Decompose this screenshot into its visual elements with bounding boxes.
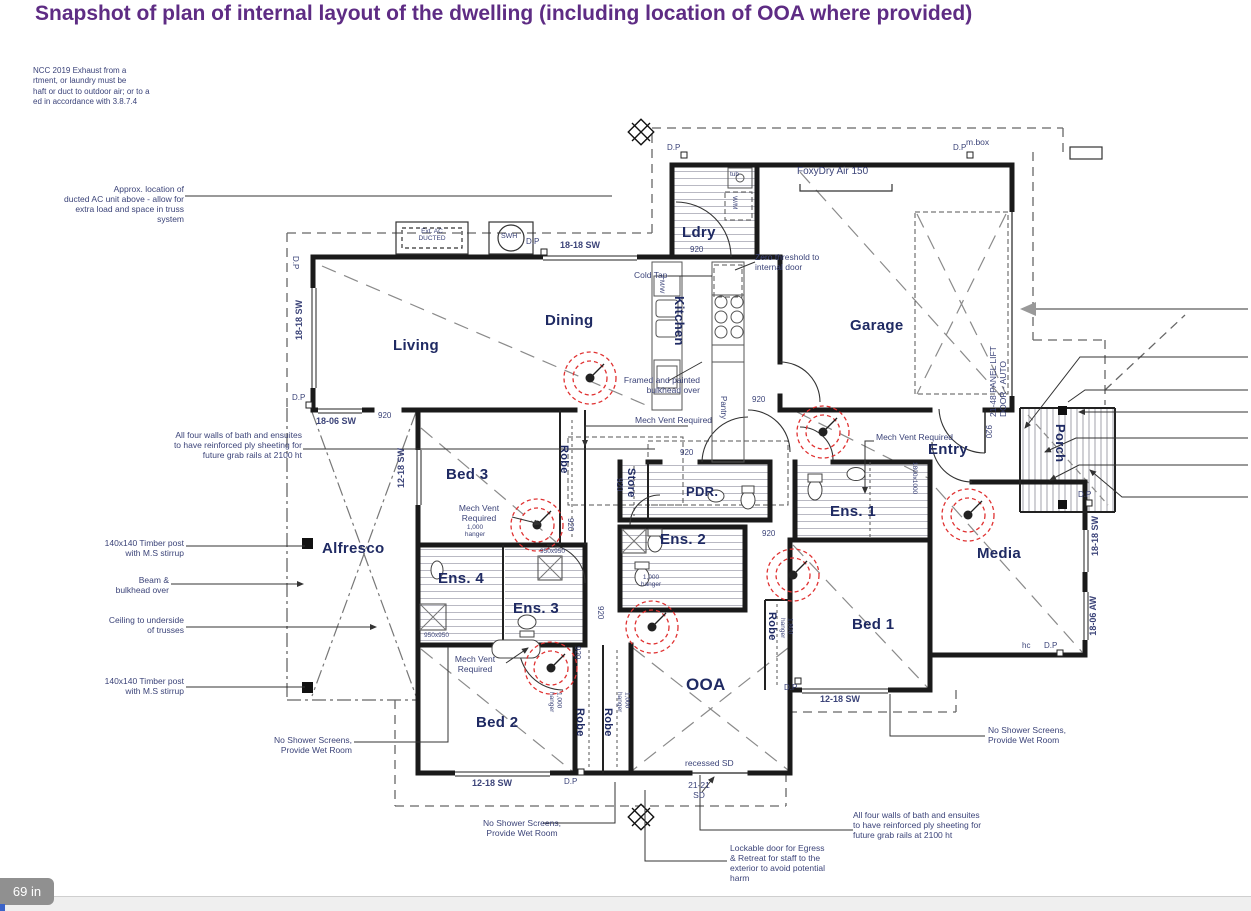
room-label-ooa: OOA <box>686 675 726 695</box>
note-ply-left: All four walls of bath and ensuites to h… <box>88 430 302 460</box>
downpipe-label: D.P <box>667 144 680 153</box>
label-meter-box: m.box <box>966 137 989 147</box>
door-width: 920 <box>762 530 775 539</box>
room-label-alfresco: Alfresco <box>322 540 384 557</box>
room-label-ens1: Ens. 1 <box>830 503 876 520</box>
label-swh: SWH <box>501 233 517 241</box>
window-label: 18-18 SW <box>1090 516 1100 556</box>
hanger-label: 1,000 hanger <box>616 692 630 712</box>
window-label: 12-18 SW <box>820 694 860 704</box>
door-width: 920 <box>572 646 581 659</box>
door-width: 920 <box>565 518 574 531</box>
hanger-label: 1,000 hanger <box>458 524 492 538</box>
note-mech-vent-pdr: Mech Vent Required <box>635 415 712 425</box>
door-width: 920 <box>614 478 623 491</box>
exhaust-fan-icon <box>942 489 994 541</box>
fridge-space-box <box>714 265 742 297</box>
porch-post <box>1058 500 1067 509</box>
note-lockable-door: Lockable door for Egress & Retreat for s… <box>730 843 852 883</box>
note-mech-vent-ens1: Mech Vent Required <box>876 432 953 442</box>
shower-size-label: 950x950 <box>540 548 565 555</box>
note-wet-room-left: No Shower Screens, Provide Wet Room <box>252 735 352 755</box>
room-label-entry: Entry <box>928 441 968 458</box>
room-label-ens3: Ens. 3 <box>513 600 559 617</box>
room-label-bed2: Bed 2 <box>476 714 518 731</box>
note-wet-room-right: No Shower Screens, Provide Wet Room <box>988 725 1090 745</box>
label-ext-ac: Ext. AC DUCTED <box>404 228 460 242</box>
downpipe-label: D.P <box>292 394 305 403</box>
note-timber-post-2: 140x140 Timber post with M.S stirrup <box>60 676 184 696</box>
room-label-bed1: Bed 1 <box>852 616 894 633</box>
window-label: 18-06 AW <box>1088 596 1098 636</box>
window-label: 12-18 SW <box>472 778 512 788</box>
note-mech-vent-ens3: Mech Vent Required <box>444 654 506 674</box>
downpipe-label: D.P <box>1044 642 1057 651</box>
room-label-ldry: Ldry <box>682 224 716 241</box>
door-width: 920 <box>378 412 391 421</box>
section-marker-icon <box>628 804 653 829</box>
hose-cock-label: hc <box>1022 642 1030 651</box>
room-label-ens4: Ens. 4 <box>438 570 484 587</box>
room-label-bed3: Bed 3 <box>446 466 488 483</box>
room-label-ens2: Ens. 2 <box>660 531 706 548</box>
note-panel-lift-door: 21-48 PANEL LIFT DOOR - AUTO <box>988 272 1008 417</box>
room-label-store: Store <box>625 468 637 498</box>
note-ducted-ac: Approx. location of ducted AC unit above… <box>58 184 184 224</box>
downpipe-label: D.P <box>290 256 299 269</box>
downpipe-label: D.P <box>784 684 797 693</box>
label-washing-machine: W/M <box>731 196 738 209</box>
scroll-indicator-dot <box>0 904 5 911</box>
meter-box <box>1070 147 1102 159</box>
note-cold-tap: Cold Tap <box>634 270 667 280</box>
floor-plan-page: Snapshot of plan of internal layout of t… <box>0 0 1251 911</box>
room-label-media: Media <box>977 545 1021 562</box>
downpipe-label: D.P <box>526 238 539 247</box>
downpipe-label: D.P <box>1078 491 1091 500</box>
room-label-living: Living <box>393 337 439 354</box>
window-label: 12-18 SW <box>396 448 406 488</box>
downpipe-label: D.P <box>953 144 966 153</box>
note-recessed-sd: recessed SD <box>685 758 734 768</box>
exhaust-fan-icon <box>525 642 577 694</box>
hanger-label: 1,800 hanger <box>779 618 793 638</box>
room-label-robe-bed2a: Robe <box>574 708 586 737</box>
note-mech-vent-bed3: Mech Vent Required <box>448 503 510 523</box>
note-timber-post-1: 140x140 Timber post with M.S stirrup <box>60 538 184 558</box>
label-microwave: M/W <box>658 280 665 293</box>
note-foxydry: FoxyDry Air 150 <box>797 166 868 178</box>
label-tub: tub <box>730 171 739 178</box>
note-framed-bulkhead: Framed and painted bulkhead over <box>608 375 700 395</box>
alfresco-post <box>302 538 313 549</box>
measurement-badge: 69 in <box>0 878 54 905</box>
foxydry-bracket <box>800 184 892 191</box>
room-label-robe-bed1: Robe <box>766 612 778 641</box>
shower-size-label: 950x950 <box>424 632 449 639</box>
note-beam-bulkhead: Beam & bulkhead over <box>96 575 169 595</box>
porch-post <box>1058 406 1067 415</box>
downpipe-label: D.P <box>564 778 577 787</box>
room-label-porch: Porch <box>1053 424 1068 462</box>
room-label-pdr: PDR. <box>686 484 718 499</box>
note-zero-threshold: Zero threshold to internal door <box>755 252 839 272</box>
window-label: 18-18 SW <box>560 240 600 250</box>
note-ply-right: All four walls of bath and ensuites to h… <box>853 810 1005 840</box>
shower-size-label: 1800x1000 <box>911 462 918 494</box>
hanger-label: 1,000 hanger <box>548 692 562 712</box>
door-width: 920 <box>595 606 604 619</box>
section-marker-icon <box>628 119 653 144</box>
note-sliding-door-2121: 21-21 SD <box>680 780 718 800</box>
room-label-robe-bed3: Robe <box>558 445 570 474</box>
window-label: 18-06 SW <box>316 416 356 426</box>
exhaust-fan-icon <box>797 406 849 458</box>
note-ceiling: Ceiling to underside of trusses <box>60 615 184 635</box>
room-label-pantry: Pantry <box>718 396 727 419</box>
note-wet-room-bottom: No Shower Screens, Provide Wet Room <box>468 818 576 838</box>
room-label-kitchen: Kitchen <box>672 296 687 346</box>
hanger-label: 1,000 hanger <box>634 574 668 588</box>
room-label-robe-bed2b: Robe <box>602 708 614 737</box>
door-width: 920 <box>680 449 693 458</box>
door-arcs <box>519 202 985 690</box>
door-width: 920 <box>752 396 765 405</box>
mech-vent-boxes <box>568 192 1008 505</box>
room-label-garage: Garage <box>850 317 904 334</box>
horizontal-scrollbar[interactable] <box>0 896 1251 911</box>
room-label-dining: Dining <box>545 312 593 329</box>
window-label: 18-18 SW <box>294 300 304 340</box>
exhaust-fan-icon <box>767 549 819 601</box>
door-width: 920 <box>983 425 992 438</box>
door-width: 920 <box>690 246 703 255</box>
